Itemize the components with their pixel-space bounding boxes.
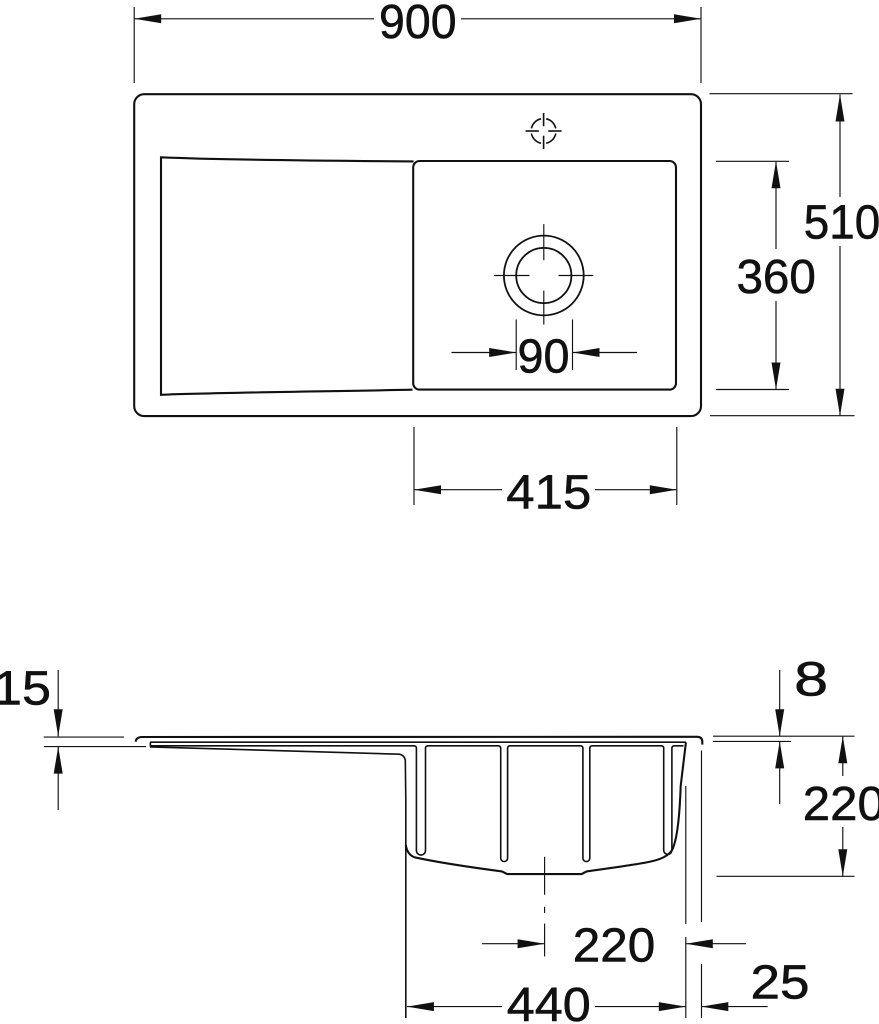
svg-text:220: 220 [803, 778, 879, 831]
svg-text:415: 415 [506, 467, 591, 520]
svg-text:440: 440 [507, 979, 591, 1024]
svg-text:360: 360 [736, 251, 816, 304]
svg-text:510: 510 [804, 197, 879, 250]
svg-text:25: 25 [751, 956, 810, 1009]
svg-text:900: 900 [379, 0, 457, 49]
svg-text:15: 15 [0, 662, 51, 715]
svg-text:90: 90 [518, 331, 570, 384]
svg-text:8: 8 [794, 654, 828, 707]
svg-text:220: 220 [573, 920, 656, 973]
